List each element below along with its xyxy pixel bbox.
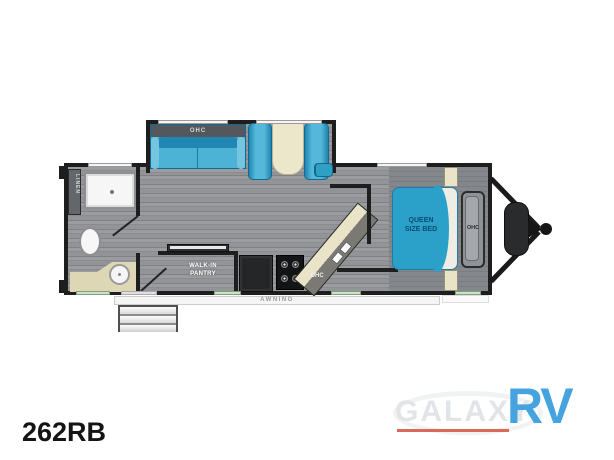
pantry-label: WALK-IN PANTRY (168, 263, 238, 278)
dinette-chair (314, 163, 333, 177)
nightstand-top (444, 167, 458, 187)
window-pantry-lower (214, 291, 241, 295)
awning-label: AWNING (115, 297, 439, 304)
window-kitchen-lower (331, 291, 361, 295)
sofa-back-cushion (158, 137, 238, 148)
window-slide-sofa (158, 120, 228, 124)
bathroom-wall-lower (136, 253, 140, 293)
window-bath (88, 163, 132, 167)
kitchen-ohc-label: OHC (305, 273, 329, 281)
sofa-armrest-left (151, 137, 159, 169)
stove-burner (281, 261, 288, 268)
window-bedroom (377, 163, 427, 167)
shower-drain (110, 190, 114, 194)
vanity-sink (109, 264, 130, 285)
rear-bumper-tab (59, 280, 65, 293)
stove-burner (292, 261, 299, 268)
sofa-ohc-cabinet: OHC (151, 125, 245, 137)
sofa-armrest-right (237, 137, 245, 169)
step-tread (120, 316, 176, 325)
window-slide-dinette (256, 120, 322, 124)
sofa-ohc-label: OHC (151, 125, 245, 137)
bedroom-wall-top (330, 184, 371, 188)
logo-rv-text: RV (507, 381, 572, 431)
nightstand-bottom (444, 270, 458, 291)
entry-door-opening (121, 291, 157, 295)
floorplan-page: OHC LINEN WALK-IN PANTRY (0, 0, 614, 460)
dinette-table (272, 122, 304, 175)
refrigerator (239, 255, 273, 292)
sofa-seat-split (197, 148, 198, 168)
toilet (79, 227, 101, 256)
model-number: 262RB (22, 417, 106, 448)
bedroom-wall-bottom (337, 268, 398, 272)
dinette-bench-left (248, 123, 272, 180)
wardrobe-ohc-label: OHC (463, 225, 483, 231)
step-tread (120, 307, 176, 316)
pantry-label-line2: PANTRY (168, 271, 238, 279)
entry-steps (118, 305, 178, 332)
sofa: OHC (150, 124, 246, 169)
awning-band: AWNING (114, 296, 440, 305)
stove-burner (281, 275, 288, 282)
rear-bumper-tab (59, 166, 65, 179)
kitchen-sink-basin (339, 241, 352, 255)
brand-logo: GALAXY RV (385, 383, 595, 445)
logo-underline (397, 429, 509, 432)
pantry-shelf-face (170, 246, 226, 249)
propane-tank (504, 202, 529, 256)
shower (84, 172, 136, 209)
bathroom-wall-upper (136, 167, 140, 216)
linen-cabinet: LINEN (68, 169, 81, 215)
window-rear-lower (76, 291, 110, 295)
queen-bed-label: QUEEN SIZE BED (392, 217, 450, 235)
pantry-shelf (167, 244, 229, 252)
step-tread (120, 325, 176, 332)
pantry-label-line1: WALK-IN (168, 263, 238, 271)
front-skirt-band (442, 295, 489, 303)
vanity-sink-drain (118, 273, 121, 276)
kitchen-sink-basin (331, 251, 344, 265)
queen-bed-label-line2: SIZE BED (392, 226, 450, 235)
hitch-jack-wheel (540, 223, 552, 235)
queen-bed-label-line1: QUEEN (392, 217, 450, 226)
wardrobe-ohc: OHC (461, 191, 485, 268)
linen-label: LINEN (69, 174, 80, 194)
bedroom-wall-vertical (367, 184, 371, 244)
